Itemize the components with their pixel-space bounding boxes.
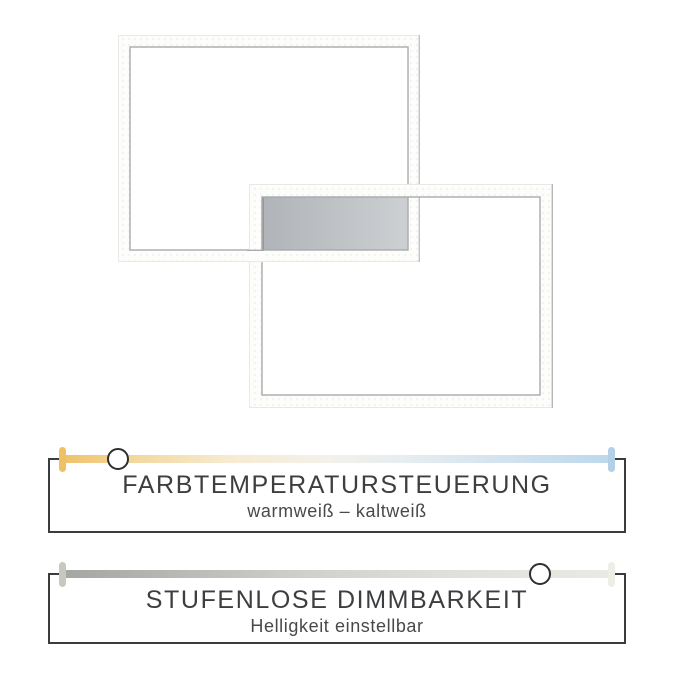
cold-end-cap — [608, 447, 615, 472]
product-feature-image: FARBTEMPERATURSTEUERUNG warmweiß – kaltw… — [0, 0, 676, 676]
color-temperature-panel: FARBTEMPERATURSTEUERUNG warmweiß – kaltw… — [48, 458, 626, 533]
frame-weave-patch — [247, 250, 264, 261]
lamp-canopy-plate — [262, 197, 408, 250]
dim-bright-end-cap — [608, 562, 615, 587]
dim-dark-end-cap — [59, 562, 66, 587]
color-temperature-subtitle: warmweiß – kaltweiß — [50, 501, 624, 522]
color-temperature-title: FARBTEMPERATURSTEUERUNG — [50, 471, 624, 499]
dimming-subtitle: Helligkeit einstellbar — [50, 616, 624, 637]
dimming-knob — [529, 563, 551, 585]
dimming-title: STUFENLOSE DIMMBARKEIT — [50, 586, 624, 614]
lamp-illustration — [0, 0, 676, 445]
color-temperature-knob — [107, 448, 129, 470]
color-temperature-slider-track — [62, 455, 612, 463]
warm-end-cap — [59, 447, 66, 472]
